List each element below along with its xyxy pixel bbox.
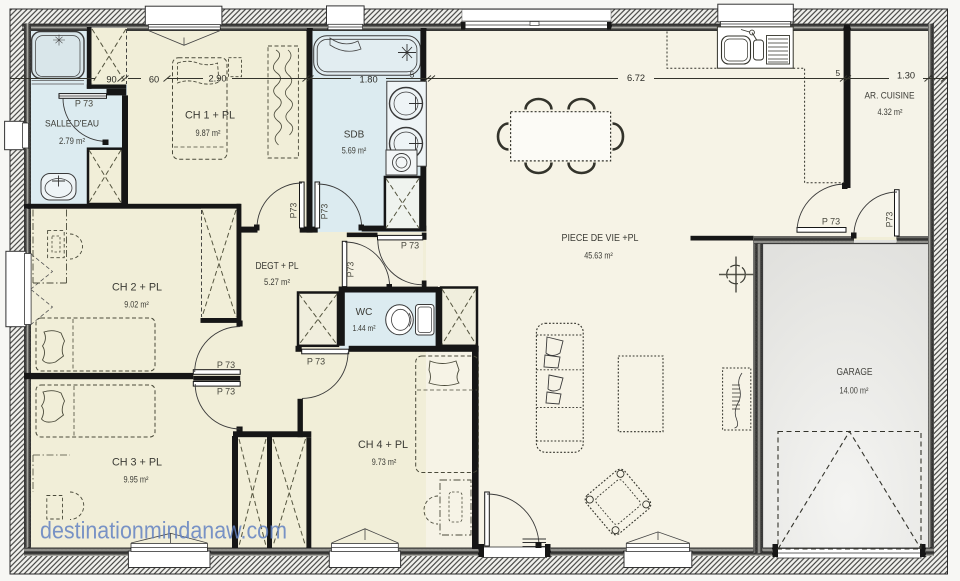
svg-text:5.27 m²: 5.27 m² <box>264 277 290 287</box>
svg-text:9.73 m²: 9.73 m² <box>372 457 397 467</box>
svg-text:1.80: 1.80 <box>360 74 378 84</box>
svg-text:PIECE DE VIE +PL: PIECE DE VIE +PL <box>562 233 639 244</box>
svg-text:9.02 m²: 9.02 m² <box>124 300 149 310</box>
svg-text:2.90: 2.90 <box>208 74 226 84</box>
svg-text:AR. CUISINE: AR. CUISINE <box>865 91 915 102</box>
svg-text:P73: P73 <box>289 203 299 219</box>
svg-text:5: 5 <box>835 68 840 78</box>
svg-text:1.44 m²: 1.44 m² <box>353 323 376 333</box>
svg-text:DEGT + PL: DEGT + PL <box>256 261 299 272</box>
svg-text:2.79 m²: 2.79 m² <box>59 136 85 146</box>
svg-text:5.69 m²: 5.69 m² <box>342 146 367 156</box>
svg-text:CH 1 + PL: CH 1 + PL <box>185 110 235 122</box>
svg-text:60: 60 <box>149 74 159 84</box>
svg-text:1.30: 1.30 <box>897 71 915 81</box>
svg-text:90: 90 <box>106 74 116 84</box>
svg-text:P 73: P 73 <box>307 357 325 367</box>
svg-text:9.95 m²: 9.95 m² <box>124 475 149 485</box>
svg-text:CH 2 + PL: CH 2 + PL <box>112 282 162 294</box>
svg-text:P73: P73 <box>346 262 356 278</box>
svg-text:SDB: SDB <box>344 130 365 141</box>
svg-text:P 73: P 73 <box>822 217 840 227</box>
svg-text:GARAGE: GARAGE <box>837 367 873 378</box>
svg-text:WC: WC <box>356 307 373 318</box>
svg-text:P73: P73 <box>320 204 330 220</box>
svg-text:9.87 m²: 9.87 m² <box>196 128 221 138</box>
svg-text:CH 3 + PL: CH 3 + PL <box>112 457 162 469</box>
svg-text:CH 4 + PL: CH 4 + PL <box>358 439 408 451</box>
svg-text:14.00 m²: 14.00 m² <box>840 386 869 396</box>
svg-text:P 73: P 73 <box>217 387 235 397</box>
svg-text:P73: P73 <box>885 212 895 228</box>
svg-text:45.63 m²: 45.63 m² <box>584 251 613 261</box>
svg-text:SALLE D'EAU: SALLE D'EAU <box>45 119 99 130</box>
svg-text:P 73: P 73 <box>75 99 93 109</box>
svg-text:5: 5 <box>410 70 415 80</box>
svg-text:destinationmindanaw.com: destinationmindanaw.com <box>40 518 287 545</box>
svg-text:4.32 m²: 4.32 m² <box>878 107 903 117</box>
svg-text:P 73: P 73 <box>401 241 419 251</box>
svg-text:6.72: 6.72 <box>627 73 645 83</box>
svg-text:P 73: P 73 <box>217 360 235 370</box>
